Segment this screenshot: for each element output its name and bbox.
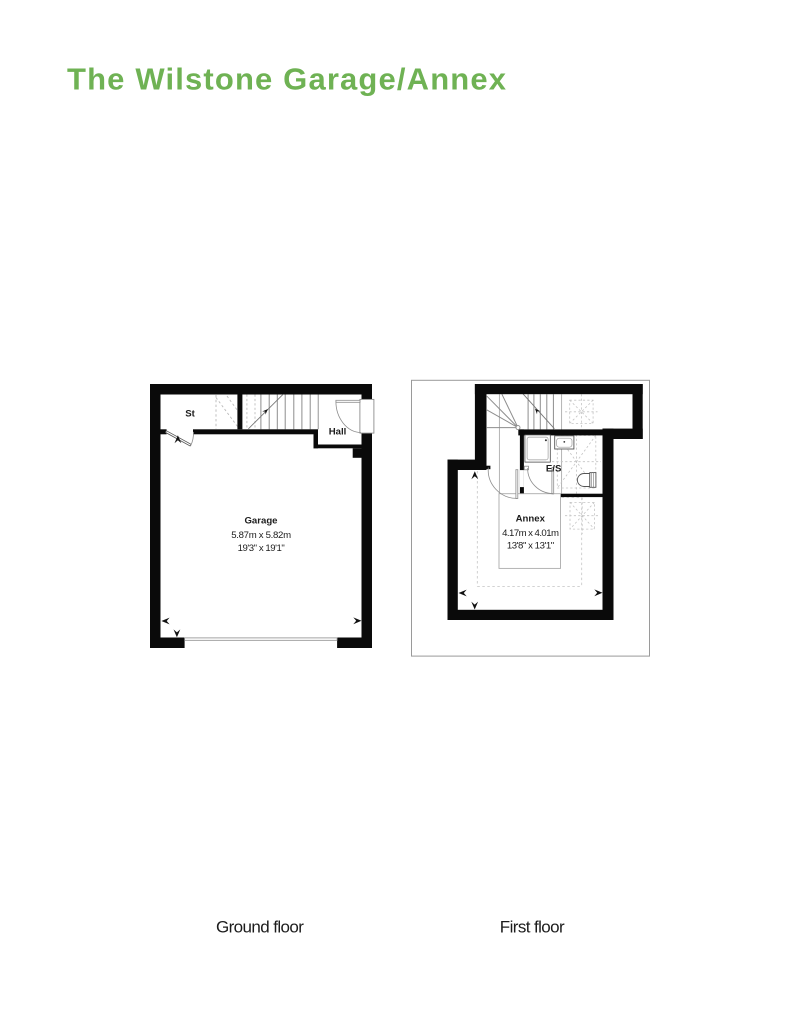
svg-text:Ground floor: Ground floor bbox=[216, 918, 304, 937]
svg-text:St: St bbox=[185, 408, 195, 419]
svg-text:E/S: E/S bbox=[546, 464, 562, 475]
svg-text:Hall: Hall bbox=[329, 427, 347, 438]
svg-text:4.17m x 4.01m: 4.17m x 4.01m bbox=[502, 528, 559, 539]
svg-text:First floor: First floor bbox=[500, 918, 565, 937]
svg-text:13'8" x 13'1": 13'8" x 13'1" bbox=[507, 540, 554, 551]
svg-text:19'3" x 19'1": 19'3" x 19'1" bbox=[238, 543, 285, 554]
svg-text:5.87m x 5.82m: 5.87m x 5.82m bbox=[231, 530, 291, 541]
svg-text:Annex: Annex bbox=[516, 514, 546, 525]
svg-text:Garage: Garage bbox=[244, 516, 277, 527]
svg-text:The Wilstone Garage/Annex: The Wilstone Garage/Annex bbox=[67, 62, 507, 97]
